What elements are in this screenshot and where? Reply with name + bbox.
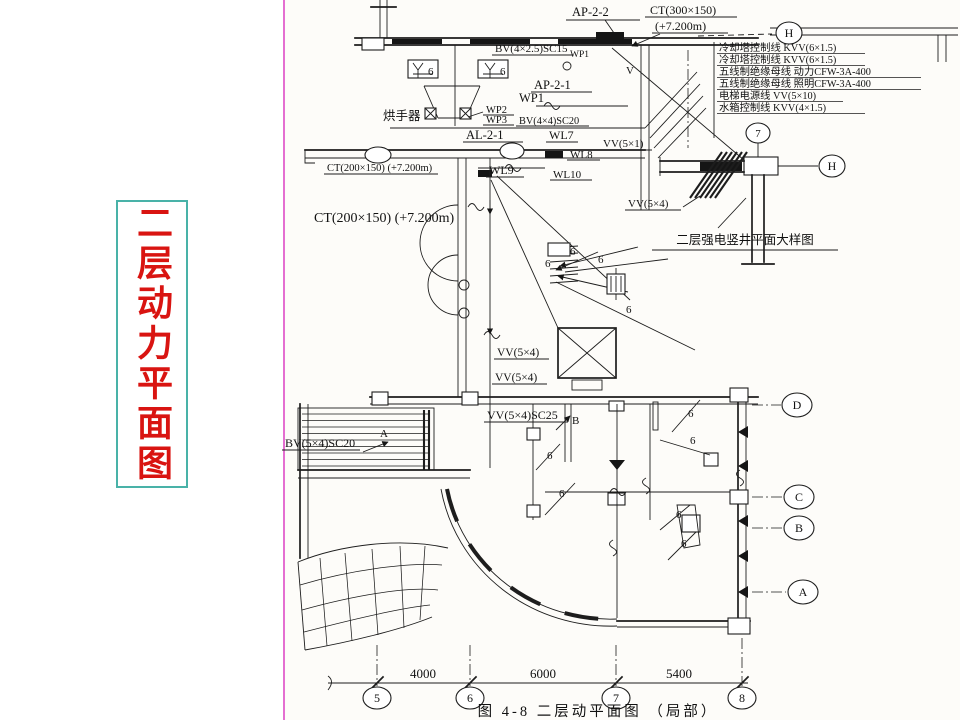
label-wl7: WL7 [549, 128, 574, 142]
grid-bubble-c-label: C [795, 490, 803, 504]
dimension-5400: 5400 [666, 666, 692, 681]
grid-bubble-h-right-label: H [828, 159, 837, 173]
label-wp3: WP3 [486, 115, 507, 126]
grid-bubble-7-label: 7 [613, 691, 619, 705]
label-bv4x25-sc15: BV(4×2.5)SC15 [495, 43, 568, 55]
dimension-4000: 4000 [410, 666, 436, 681]
label-ct300: CT(300×150) [650, 3, 716, 17]
cable-list-row: 五线制绝缘母线 动力CFW-3A-400 [719, 65, 871, 78]
label-ct200-large: CT(200×150) (+7.200m) [314, 211, 455, 226]
label-bv4x4-sc20: BV(4×4)SC20 [519, 116, 579, 127]
label-ct300-elev: (+7.200m) [655, 19, 706, 33]
grid-bubble-8-label: 8 [739, 691, 745, 705]
cable-list-row: 水箱控制线 KVV(4×1.5) [719, 101, 826, 114]
grid-bubble-5-label: 5 [374, 691, 380, 705]
label-vv5x4-sc25: VV(5×4)SC25 [487, 408, 558, 422]
riser-detail-caption: 二层强电竖井平面大样图 [676, 232, 814, 247]
label-wl10: WL10 [553, 169, 582, 181]
grid-bubble-d-label: D [793, 398, 802, 412]
label-vv5x4-detail: VV(5×4) [628, 198, 669, 210]
floor-plan-drawing: AP-2-2 CT(300×150) (+7.200m) H 6 [0, 0, 960, 720]
grid-bubble-7-detail-label: 7 [755, 128, 761, 140]
circuit-number: 6 [688, 408, 694, 420]
circuit-number: 6 [598, 254, 604, 266]
figure-caption: 图 4-8 二层动平面图 （局部） [478, 703, 719, 720]
circuit-number: 6 [500, 66, 506, 78]
label-ap-2-1: AP-2-1 [534, 78, 571, 92]
column-oval [500, 143, 524, 159]
label-bv5x4-sc20: BV(5×4)SC20 [285, 436, 355, 450]
dimension-6000: 6000 [530, 666, 556, 681]
circuit-number: 6 [676, 509, 682, 521]
grid-bubble-h-top-label: H [785, 26, 794, 40]
cable-list-row: 电梯电源线 VV(5×10) [719, 89, 816, 102]
label-hand-dryer: 烘手器 [383, 109, 421, 123]
grid-bubble-b-label: B [795, 521, 803, 535]
label-ap-2-2: AP-2-2 [572, 5, 609, 19]
panel-ap-2-2-box [596, 32, 624, 40]
cable-list-row: 五线制绝缘母线 照明CFW-3A-400 [719, 77, 871, 90]
label-wp1: WP1 [519, 91, 544, 105]
label-point-b: B [572, 415, 579, 427]
label-wl8: WL8 [570, 149, 593, 161]
circuit-number: 6 [428, 66, 434, 78]
cable-list-row: 冷却塔控制线 KVV(6×1.5) [719, 41, 836, 54]
circuit-number: 6 [626, 304, 632, 316]
label-al-2-1: AL-2-1 [466, 128, 504, 142]
label-ct200-small: CT(200×150) (+7.200m) [327, 163, 433, 174]
junction-box [545, 151, 563, 158]
grid-bubble-a-label: A [799, 585, 808, 599]
label-v: V [626, 65, 634, 77]
label-vv5x4: VV(5×4) [495, 372, 537, 384]
slide-canvas: 二层动力平面图 [0, 0, 960, 720]
circuit-number: 6 [570, 246, 576, 258]
circuit-number: 6 [681, 538, 687, 550]
cable-list-row: 冷却塔控制线 KVV(6×1.5) [719, 53, 836, 66]
label-vv5x1: VV(5×1) [603, 138, 644, 150]
circuit-number: 6 [547, 450, 553, 462]
label-vv5x4: VV(5×4) [497, 347, 539, 359]
circuit-number: 6 [545, 258, 551, 270]
circuit-number: 6 [690, 435, 696, 447]
label-wp1-small: WP1 [570, 50, 589, 60]
outlet-box [548, 243, 570, 256]
grid-bubble-6-label: 6 [467, 691, 473, 705]
label-point-a: A [380, 428, 388, 440]
column-oval [365, 147, 391, 163]
circuit-number: 6 [559, 488, 565, 500]
